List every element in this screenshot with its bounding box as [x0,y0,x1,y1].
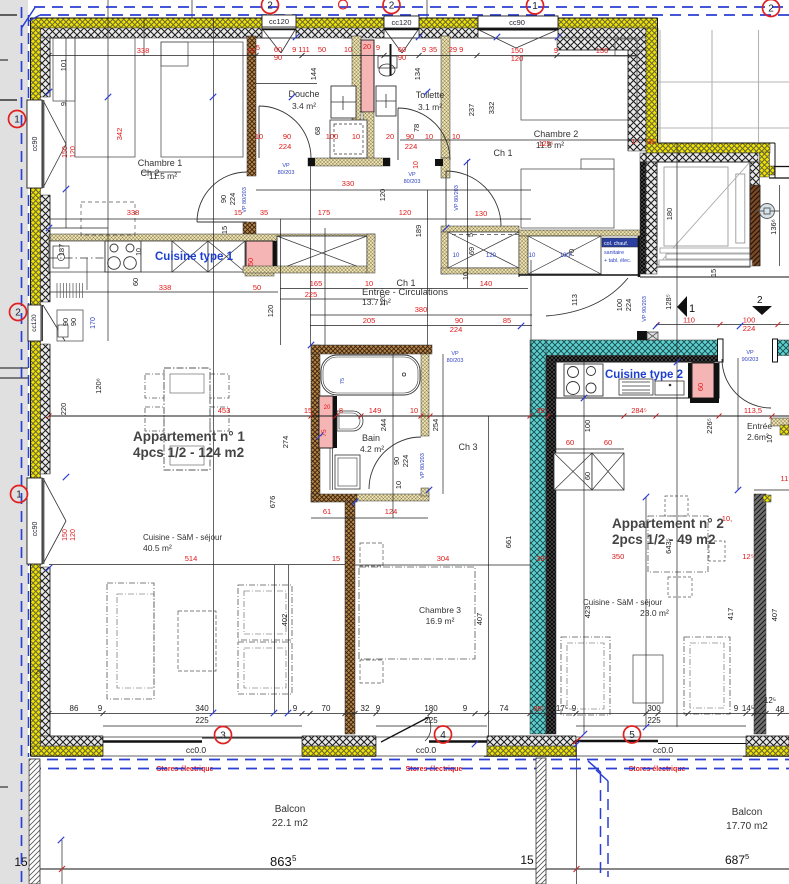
svg-text:338: 338 [159,283,172,292]
svg-text:68: 68 [313,127,322,135]
svg-text:50: 50 [246,258,255,266]
svg-text:5: 5 [256,43,260,52]
svg-text:225: 225 [424,716,438,725]
svg-text:VP 80/203: VP 80/203 [242,187,248,213]
svg-text:Stores électrique: Stores électrique [629,766,686,773]
svg-text:10,: 10, [722,514,732,523]
svg-text:224: 224 [450,325,463,334]
svg-text:15: 15 [234,208,242,217]
svg-text:20: 20 [324,405,331,411]
svg-text:165: 165 [310,279,323,288]
svg-text:225: 225 [305,290,318,299]
svg-text:9: 9 [734,704,739,713]
svg-text:60: 60 [696,383,705,391]
svg-text:VP: VP [746,350,754,356]
svg-text:120: 120 [378,189,387,202]
svg-text:23.0 m²: 23.0 m² [640,608,669,618]
svg-text:5: 5 [629,730,635,741]
svg-text:4: 4 [440,730,446,741]
svg-text:cc120: cc120 [391,18,411,27]
svg-text:9: 9 [463,704,468,713]
svg-text:74: 74 [500,704,509,713]
svg-text:90: 90 [69,318,78,326]
svg-text:514: 514 [185,554,198,563]
svg-text:284⁵: 284⁵ [631,406,647,415]
svg-text:9: 9 [554,46,558,55]
svg-text:120: 120 [266,305,275,318]
svg-text:20: 20 [363,42,371,51]
svg-text:cc90: cc90 [32,137,39,152]
svg-text:4pcs 1/2 - 124 m2: 4pcs 1/2 - 124 m2 [133,445,244,460]
svg-text:sanitaire: sanitaire [604,250,624,256]
svg-text:3.4 m²: 3.4 m² [292,101,316,111]
svg-text:14⁵: 14⁵ [742,704,754,713]
svg-text:50: 50 [318,45,326,54]
svg-text:189: 189 [414,225,423,238]
svg-text:90: 90 [455,316,463,325]
svg-text:4.2 m²: 4.2 m² [360,444,384,454]
svg-text:35: 35 [429,45,437,54]
svg-text:676: 676 [268,496,277,509]
svg-text:10: 10 [344,45,352,54]
svg-text:Ch 1: Ch 1 [493,148,512,158]
svg-text:687: 687 [725,853,745,867]
svg-text:1: 1 [14,115,20,126]
svg-text:863: 863 [270,854,292,869]
svg-text:Chambre 3: Chambre 3 [419,605,461,615]
svg-text:120: 120 [70,529,77,541]
svg-text:332: 332 [487,102,496,115]
svg-text:342: 342 [115,128,124,141]
svg-text:423: 423 [583,606,592,619]
svg-text:9: 9 [98,704,103,713]
svg-text:69: 69 [467,247,476,255]
svg-text:85: 85 [503,316,511,325]
svg-text:149: 149 [369,406,382,415]
svg-text:3: 3 [220,731,226,742]
svg-text:205: 205 [363,316,376,325]
svg-text:5: 5 [745,852,749,861]
svg-text:402: 402 [280,614,289,627]
svg-text:Stores électrique: Stores électrique [406,766,463,773]
svg-text:224: 224 [624,299,633,312]
svg-text:10: 10 [255,132,263,141]
svg-text:10: 10 [410,406,418,415]
svg-text:60: 60 [131,278,140,286]
svg-text:2: 2 [267,1,273,12]
svg-text:10: 10 [365,279,373,288]
svg-text:100: 100 [583,420,592,433]
svg-text:340: 340 [195,704,209,713]
svg-text:130: 130 [475,209,488,218]
svg-text:90/203: 90/203 [742,357,759,363]
svg-text:226⁵: 226⁵ [705,418,714,434]
svg-text:col. chauf.: col. chauf. [604,241,628,247]
svg-text:140: 140 [480,279,493,288]
svg-text:9: 9 [59,102,68,106]
svg-text:144: 144 [309,68,318,81]
svg-text:225: 225 [647,716,661,725]
svg-text:120⁶: 120⁶ [94,378,103,394]
svg-text:170: 170 [90,317,97,329]
svg-text:Appartement n° 2: Appartement n° 2 [612,516,724,531]
svg-text:124: 124 [385,507,398,516]
svg-text:10: 10 [394,481,403,489]
svg-text:VP 90/203: VP 90/203 [642,296,648,322]
svg-text:Toilette: Toilette [416,90,445,100]
svg-text:150: 150 [62,146,69,158]
svg-text:Entrée: Entrée [747,421,772,431]
svg-text:134: 134 [413,68,422,81]
svg-text:5: 5 [466,233,475,237]
svg-text:90: 90 [406,132,414,141]
svg-text:+ tabl. élec.: + tabl. élec. [604,258,631,264]
svg-text:Cuisine - SàM - séjour: Cuisine - SàM - séjour [583,598,662,607]
svg-text:Chambre 1: Chambre 1 [138,158,183,168]
svg-text:120: 120 [511,54,524,63]
svg-text:80/203: 80/203 [447,358,464,364]
svg-text:330: 330 [342,179,355,188]
svg-text:Cuisine type 1: Cuisine type 1 [155,251,234,263]
svg-text:10: 10 [452,132,460,141]
svg-text:Appartement n° 1: Appartement n° 1 [133,429,245,444]
svg-text:338: 338 [127,208,140,217]
svg-text:17.70 m2: 17.70 m2 [726,821,768,832]
svg-text:75: 75 [321,429,328,437]
svg-text:90: 90 [283,132,291,141]
svg-text:2.6m²: 2.6m² [747,432,769,442]
svg-text:120: 120 [70,146,77,158]
svg-text:110: 110 [683,316,695,325]
svg-text:Chambre 2: Chambre 2 [534,129,579,139]
svg-text:9: 9 [293,704,298,713]
svg-text:10: 10 [529,253,536,259]
svg-text:2: 2 [15,308,21,319]
svg-text:10: 10 [453,253,460,259]
svg-text:175: 175 [318,208,331,217]
svg-text:5: 5 [292,854,297,863]
svg-text:75: 75 [340,378,346,384]
svg-text:220: 220 [59,403,68,416]
svg-text:32: 32 [361,704,370,713]
svg-text:VP: VP [451,351,459,357]
svg-text:101: 101 [59,59,68,72]
svg-text:407: 407 [475,613,484,626]
svg-text:1: 1 [689,303,695,315]
svg-text:128⁵: 128⁵ [664,294,673,310]
svg-text:80/203: 80/203 [404,179,421,185]
svg-text:10: 10 [413,161,420,169]
svg-text:9: 9 [422,45,426,54]
svg-text:224: 224 [743,324,756,333]
svg-text:224: 224 [401,455,410,468]
svg-text:224: 224 [405,142,418,151]
svg-text:15: 15 [304,406,312,415]
svg-text:643⁵: 643⁵ [664,538,673,554]
svg-text:338: 338 [137,46,150,55]
svg-text:224: 224 [228,193,237,206]
svg-text:244: 244 [379,419,388,432]
svg-text:3.1 m²: 3.1 m² [418,102,442,112]
svg-text:274: 274 [281,436,290,449]
svg-text:cc0.0: cc0.0 [416,745,437,755]
svg-text:417: 417 [726,608,735,621]
svg-text:304: 304 [437,554,450,563]
svg-text:86⁵: 86⁵ [533,704,544,713]
svg-text:120: 120 [399,208,412,217]
svg-text:661: 661 [504,536,513,549]
svg-text:150: 150 [62,529,69,541]
svg-text:cc120: cc120 [31,314,38,332]
svg-text:39⁵: 39⁵ [536,406,547,415]
svg-text:15: 15 [220,226,229,234]
svg-text:60: 60 [583,472,592,480]
svg-text:224: 224 [279,142,292,151]
svg-text:90: 90 [219,195,228,203]
svg-text:9: 9 [376,43,380,52]
svg-text:10: 10 [352,132,360,141]
svg-text:cc120: cc120 [269,17,289,26]
svg-text:25: 25 [35,667,43,676]
svg-text:350: 350 [612,552,625,561]
svg-text:10: 10 [461,272,470,280]
svg-text:407: 407 [770,609,779,622]
svg-text:2: 2 [768,4,774,15]
svg-text:12⁵: 12⁵ [764,696,776,705]
svg-text:22.1 m2: 22.1 m2 [272,818,309,829]
svg-text:100: 100 [326,132,339,141]
svg-text:453: 453 [218,406,231,415]
svg-text:90: 90 [274,53,282,62]
svg-text:12⁵: 12⁵ [742,552,753,561]
svg-text:cc0.0: cc0.0 [186,745,207,755]
svg-text:15: 15 [520,853,534,867]
svg-text:120: 120 [378,294,387,307]
svg-text:190⁵: 190⁵ [560,252,573,259]
svg-text:1⁵: 1⁵ [631,137,638,146]
svg-text:Stores électrique: Stores électrique [157,766,214,773]
svg-text:60: 60 [604,438,612,447]
svg-text:35: 35 [260,208,268,217]
svg-text:cc90: cc90 [32,522,39,537]
svg-text:cc0.0: cc0.0 [653,745,674,755]
svg-text:VP 80/203: VP 80/203 [454,185,460,211]
svg-text:cc90: cc90 [509,18,525,27]
svg-text:50: 50 [253,283,261,292]
svg-text:17⁵: 17⁵ [556,704,568,713]
svg-text:9: 9 [572,704,577,713]
svg-text:39⁵: 39⁵ [536,554,547,563]
svg-text:15: 15 [247,46,255,55]
svg-text:15: 15 [709,269,718,277]
svg-text:78: 78 [412,124,421,132]
svg-text:225: 225 [195,716,209,725]
svg-text:VP 80/203: VP 80/203 [420,453,426,479]
svg-text:60: 60 [566,438,574,447]
svg-text:11⁵: 11⁵ [781,474,789,483]
svg-text:16.9 m²: 16.9 m² [426,616,455,626]
svg-text:1: 1 [532,1,538,12]
svg-text:254: 254 [431,419,440,432]
svg-text:61: 61 [323,507,331,516]
svg-text:90: 90 [398,53,406,62]
svg-text:9: 9 [376,704,381,713]
svg-text:11.5 m²: 11.5 m² [149,171,177,181]
svg-text:29 9: 29 9 [449,45,464,54]
svg-text:70: 70 [322,704,331,713]
svg-text:180: 180 [424,704,438,713]
svg-text:130: 130 [596,46,609,55]
svg-text:80/203: 80/203 [278,170,295,176]
svg-text:VP: VP [408,172,416,178]
svg-text:Cuisine - SàM - séjour: Cuisine - SàM - séjour [143,533,222,542]
svg-text:380: 380 [415,305,428,314]
svg-text:2: 2 [757,295,763,306]
svg-text:1: 1 [16,490,22,501]
svg-text:237: 237 [467,104,476,117]
svg-text:90: 90 [392,457,401,465]
svg-text:Balcon: Balcon [732,807,763,818]
svg-text:48: 48 [776,705,785,714]
svg-text:Douche: Douche [288,89,319,99]
svg-text:113: 113 [570,294,579,306]
svg-text:100: 100 [615,299,624,312]
svg-text:187: 187 [57,244,66,257]
svg-text:125⁵: 125⁵ [539,141,554,148]
svg-text:2: 2 [389,1,395,12]
svg-text:20: 20 [386,132,394,141]
svg-text:136⁶: 136⁶ [769,219,778,235]
svg-text:180: 180 [665,208,674,221]
svg-text:Balcon: Balcon [275,804,306,815]
svg-text:86: 86 [70,704,79,713]
svg-text:Cuisine type 2: Cuisine type 2 [605,369,683,381]
svg-text:113,5: 113,5 [744,406,762,415]
svg-text:15: 15 [332,554,340,563]
svg-text:Ch 3: Ch 3 [458,442,477,452]
svg-text:40.5 m²: 40.5 m² [143,543,172,553]
svg-text:120: 120 [486,253,497,259]
svg-text:9 111: 9 111 [292,45,310,54]
svg-text:Bain: Bain [362,433,380,443]
svg-text:10: 10 [425,132,433,141]
svg-text:35: 35 [647,137,655,146]
svg-text:8: 8 [339,406,343,415]
svg-text:VP: VP [282,163,290,169]
svg-text:300: 300 [647,704,661,713]
